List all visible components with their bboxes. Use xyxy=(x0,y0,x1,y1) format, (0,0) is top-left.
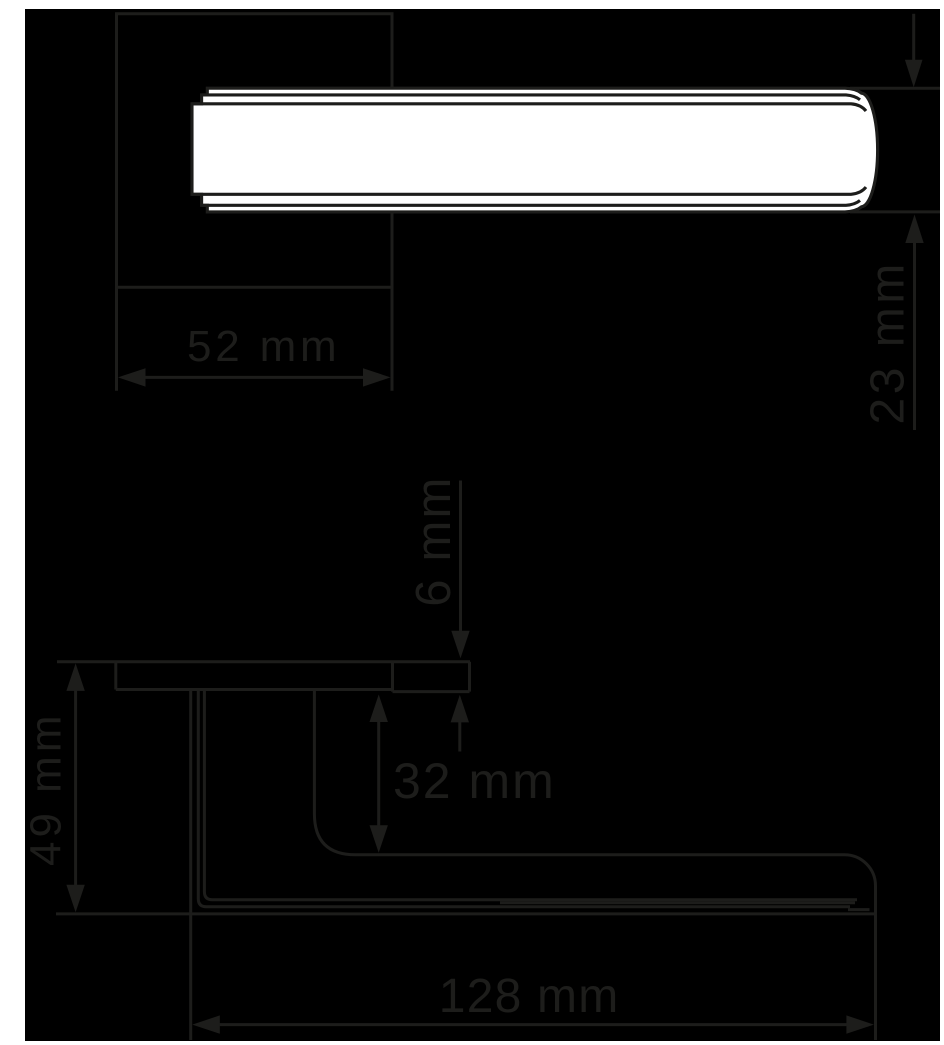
svg-text:128 mm: 128 mm xyxy=(439,970,620,1023)
svg-text:32 mm: 32 mm xyxy=(393,753,556,809)
svg-text:52 mm: 52 mm xyxy=(187,322,340,371)
svg-text:23 mm: 23 mm xyxy=(861,260,914,424)
svg-text:49 mm: 49 mm xyxy=(21,712,70,866)
svg-text:6 mm: 6 mm xyxy=(407,475,461,606)
